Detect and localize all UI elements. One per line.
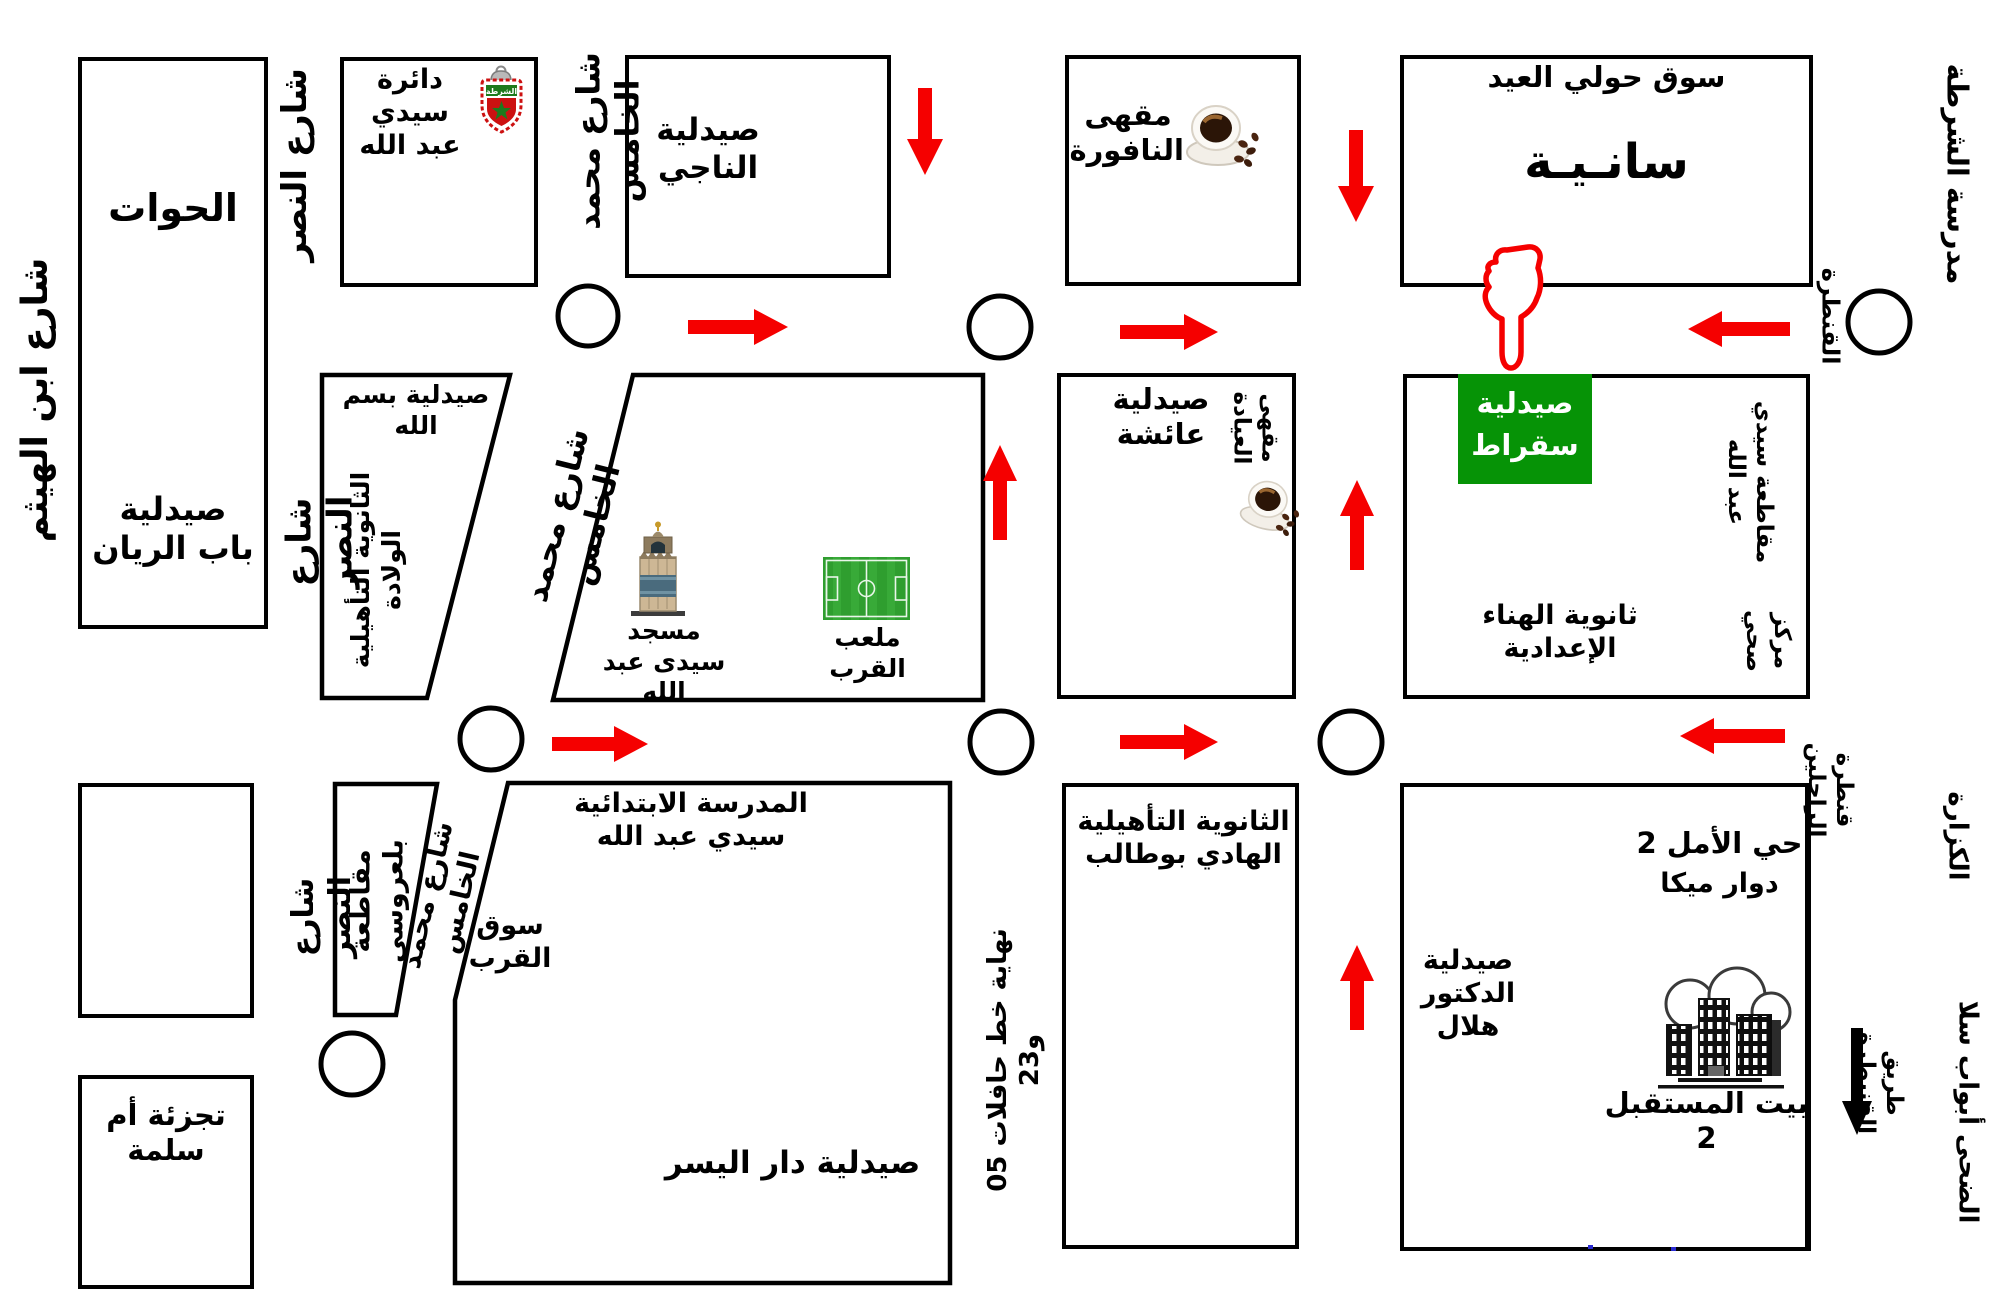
label-bab-rayan-pharmacy: صيدلية باب الريان [78,490,268,568]
roundabout-2 [969,296,1031,358]
roundabout-5 [970,711,1032,773]
arrow-down-icon [1338,130,1374,222]
label-aicha-pharmacy: صيدلية عائشة [1085,382,1237,453]
street-ibn-haytham: شارع ابن الهيثم [14,200,62,600]
block-nafoura-cafe [1065,55,1301,286]
arrow-up-icon [983,445,1017,540]
arrow-left-icon [1688,311,1790,347]
arrow-right-icon [552,726,648,762]
mosque-minaret-icon [631,522,685,617]
label-qantara: القنطرة [1809,280,1845,365]
roundabout-1 [558,286,618,346]
arrow-right-icon [1120,724,1218,760]
label-rajilin-bridge: قنطرة الراجلين [1824,705,1858,875]
socrate-pharmacy-highlight: صيدلية سقراط [1458,374,1592,484]
label-nafoura-cafe: مقهى النافورة [1072,98,1184,169]
label-qunaitra-road: طريق القنيطرة [1874,1013,1908,1153]
label-amal2: حي الأمل 2 [1636,826,1803,861]
neighborhood-map: الشرطة [0,0,2000,1305]
label-hadi-boutaleb-school: الثانوية التأهيلية الهادي بوطالب [1075,806,1292,872]
label-naji-pharmacy: صيدلية الناجي [628,112,788,188]
label-bus-line-end: نهاية خط حافلات 05 و23 [983,905,1021,1215]
arrow-right-icon [688,309,788,345]
label-bismillah-pharmacy: صيدلية بسم الله [326,380,506,441]
label-hilal-pharmacy: صيدلية الدكتور هلال [1392,945,1544,1044]
football-field-icon [823,557,910,620]
label-douar-mika: دوار ميكا [1636,868,1803,901]
label-wilada-school: الثانوية التأهيلية الولادة [346,455,410,685]
label-muqataa-sidi-abdellah: مقاطعة سيدي عبد الله [1722,397,1778,567]
label-iyada-cafe: مقهى العيادة [1232,381,1284,476]
arrow-left-icon [1680,718,1785,754]
label-mosque: مسجد سيدى عبد الله [590,616,738,708]
arrow-up-icon [1340,945,1374,1030]
label-qurb-souk: سوق القرب [468,910,552,976]
street-nasr-middle: شارع النصر [280,455,328,630]
label-health-center: مركز صحي [1744,598,1796,684]
roundabout-4 [460,708,522,770]
label-hanaa-school: ثانوية الهناء الإعدادية [1445,600,1675,666]
label-belaroussi-muqataa: مقاطعة بلعروسي [346,799,386,1004]
label-dar-yusr-pharmacy: صيدلية دار اليسر [655,1145,930,1183]
block-empty [78,783,254,1018]
label-qurb-field: ملعب القرب [820,623,915,684]
arrow-down-icon [907,88,943,175]
label-hawat: الحوات [78,185,268,231]
street-nasr-bottom: شارع النصر [286,842,328,992]
roundabout-6 [1320,711,1382,773]
street-mohammed-v-top: شارع محمد الخامس [570,14,616,269]
blue-dot [1588,1245,1593,1249]
roundabout-3 [1848,291,1910,353]
label-sidi-abdellah-district: دائرة سيدي عبد الله [344,64,476,163]
arrow-up-icon [1340,480,1374,570]
block-primary-school [455,783,950,1283]
street-nasr-top: شارع النصر [275,65,323,265]
blue-dot [1671,1247,1676,1251]
label-police-school: مدرسة الشرطة [1933,47,1975,302]
label-kazara: الكزارة [1935,779,1973,894]
label-souk-houli-eid: سوق حولي العيد [1400,60,1813,95]
roundabout-7 [321,1033,383,1095]
label-primary-school: المدرسة الابتدائية سيدي عبد الله [565,788,817,854]
arrow-right-icon [1120,314,1218,350]
label-duha-abwab-sala: الضحى أبواب سلا [1945,990,1983,1235]
label-bait-mustaqbal: بيت المستقبل 2 [1598,1086,1815,1157]
label-um-salama: تجزئة أم سلمة [80,1098,252,1169]
label-saniya: سانـيـة [1400,133,1813,192]
